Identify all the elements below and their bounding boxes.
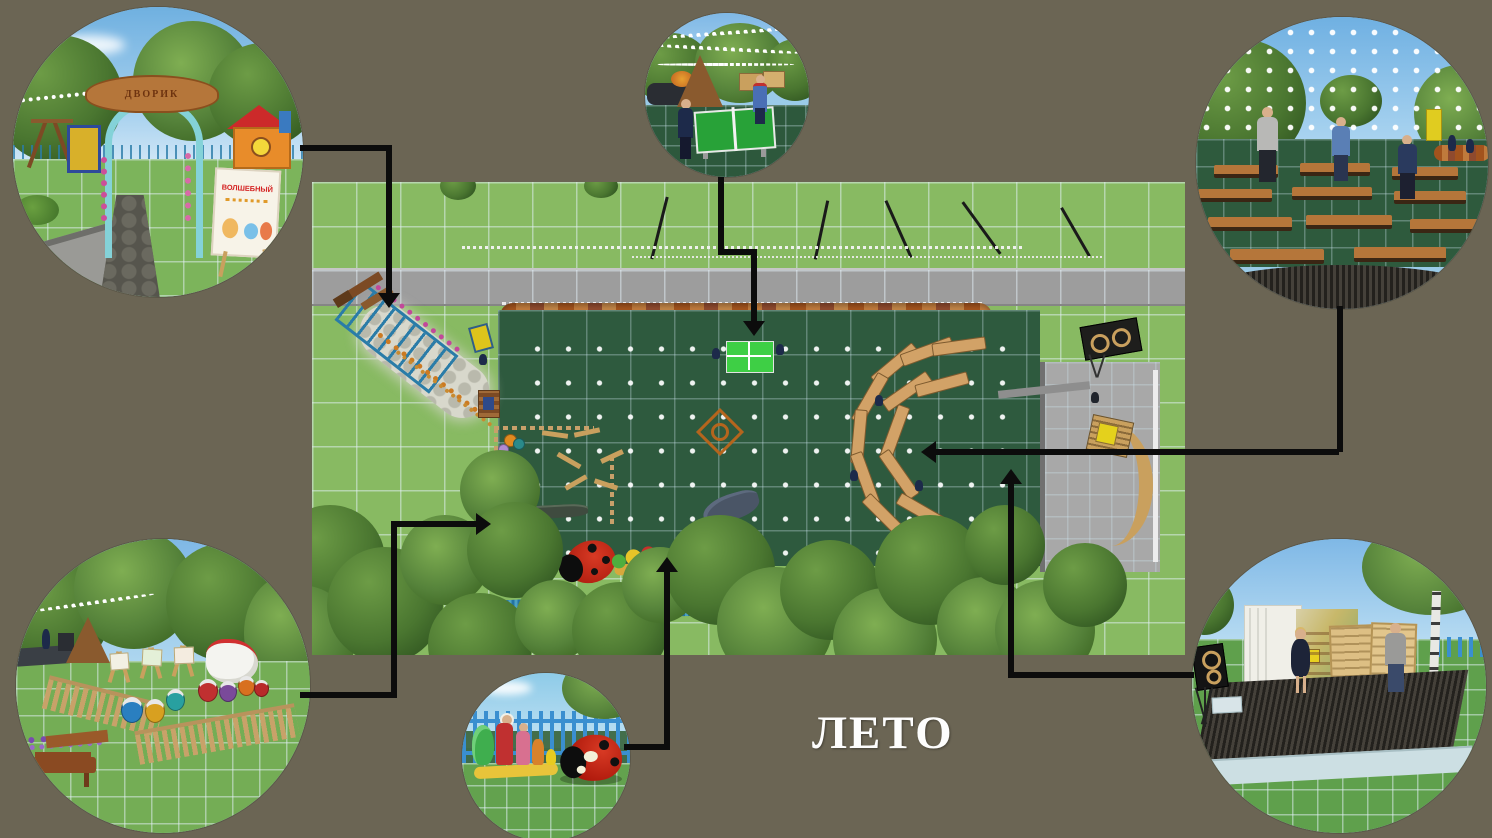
connector-line [386,145,392,295]
person [42,629,50,649]
speaker-box [1192,643,1229,691]
tree [584,182,618,198]
road [312,268,1185,306]
connector-line [664,572,670,750]
connector-line [300,692,395,698]
magic-sign: ВОЛШЕБНЫЙ [211,167,282,258]
player-legs [755,108,765,124]
figure-red [496,723,513,765]
figure-pink [516,731,530,765]
figure-bush [472,725,494,765]
sign-picture [260,222,273,241]
connector-line [936,449,1339,455]
info-sign [468,323,494,353]
connector-line [1014,672,1194,678]
person [915,480,923,491]
playhouse-window [251,137,271,157]
paint-drum [219,681,237,702]
person-torso [1398,144,1417,174]
person [1466,139,1474,153]
speaker-cone [1205,669,1222,686]
person [1091,392,1099,403]
light-pole-shadow [1060,207,1091,257]
connector-arrow-down [743,321,765,336]
stage-yellow-mat [1095,422,1119,446]
player-body [678,108,693,138]
light-pole-shadow [885,200,913,258]
connector-line [718,177,724,255]
paint-drum [121,697,143,723]
man-sweater [1385,633,1406,665]
table-net [731,107,737,151]
person-torso [1332,126,1350,156]
person [1448,135,1456,151]
person-torso [1257,117,1278,151]
bench-seat [483,397,494,410]
person-legs [1400,173,1415,199]
ladybug [558,733,623,785]
connector-arrow-up [656,557,678,572]
sign-picture [222,218,239,239]
arch-banner: ДВОРИК [85,75,219,113]
bench-top-view [478,390,500,418]
person [479,354,487,365]
compass-circle [711,423,729,441]
person-legs [1334,155,1348,181]
cloud [480,681,532,695]
callout-entrance-arch: ДВОРИК ВОЛШЕБНЫЙ [13,7,303,297]
tree [1043,543,1127,627]
stage-top-view [1040,362,1160,572]
curtain [1249,608,1271,686]
callout-ping-pong [645,13,809,177]
connector-line [1337,306,1343,452]
callout-art-corner [16,539,310,833]
speaker-tripod [1204,687,1206,727]
connector-line [391,521,476,527]
table-center-line [727,355,771,357]
bench-leg [84,773,89,787]
bench [1230,249,1324,264]
person [850,470,858,481]
connector-arrow-down [378,293,400,308]
yellow-banner [1426,109,1442,141]
blue-picket-fence [1436,637,1486,657]
paint-drum [254,680,269,697]
callout-stage [1192,539,1486,833]
playhouse-tower [279,111,291,133]
easel-board [142,648,163,666]
string-lights-field [1196,23,1488,131]
woman-legs [1303,676,1306,693]
person-legs [1259,150,1276,182]
light-pole-shadow [814,200,829,259]
tree [440,182,476,200]
connector-line [391,521,397,698]
callout-fairytale [462,673,630,838]
garden-bench [30,757,96,773]
connector-arrow-left [921,441,936,463]
bench [1410,219,1480,233]
easel-board [174,647,195,665]
slide-title: ЛЕТО [812,706,972,760]
bench [1198,189,1272,202]
connector-arrow-up [1000,469,1022,484]
figure-cat [532,739,544,765]
swing-bar [31,119,73,123]
playhouse [221,105,299,167]
hedge [1434,145,1488,161]
callout-bench-audience [1196,17,1488,309]
photo-board [67,125,101,173]
woman-dress [1291,639,1310,677]
paint-drum [145,699,165,723]
paint-drum [513,438,525,450]
string-lights [655,63,795,66]
bench [1354,247,1446,262]
tree [965,505,1045,585]
person [712,348,720,359]
connector-line [300,145,392,151]
arch-flowers [101,157,107,221]
stage-floor-edge [1196,265,1488,309]
speaker-cone [1089,332,1111,354]
connector-line [1008,484,1014,678]
slide-canvas: ДВОРИК ВОЛШЕБНЫЙ [0,0,1492,838]
flower-bush [15,195,59,225]
man-jeans [1388,664,1404,692]
bench [1208,217,1292,231]
speaker-cone [1110,327,1132,349]
fence-rail [462,719,630,723]
paint-drum [166,689,185,711]
player-legs [680,137,691,159]
arch-banner-text: ДВОРИК [125,89,179,100]
sign-squiggle [226,198,268,203]
paint-drum [238,676,255,696]
swing-leg [27,122,47,168]
bench [1292,187,1372,200]
speaker-cone [1201,649,1222,670]
connector-arrow-right [476,513,491,535]
string-lights [632,256,1102,258]
paint-drum [198,679,218,702]
magic-sign-title: ВОЛШЕБНЫЙ [219,183,276,194]
connector-line [751,249,757,323]
stage-edge-strip [1153,370,1158,562]
woman-legs [1296,676,1299,693]
bench-leg [36,773,41,787]
art-corner-fence [494,426,594,430]
sign-picture [244,223,259,240]
easel-board [109,652,129,670]
person [875,395,883,406]
bench [1306,215,1392,229]
ping-pong-table [726,341,774,373]
arch-flowers [185,153,191,221]
person [776,344,784,355]
figure-duck [546,749,556,765]
compass-ornament [696,408,742,454]
stage-step [1212,696,1243,714]
light-pole-shadow [650,197,668,260]
easel-triangle [66,617,110,663]
